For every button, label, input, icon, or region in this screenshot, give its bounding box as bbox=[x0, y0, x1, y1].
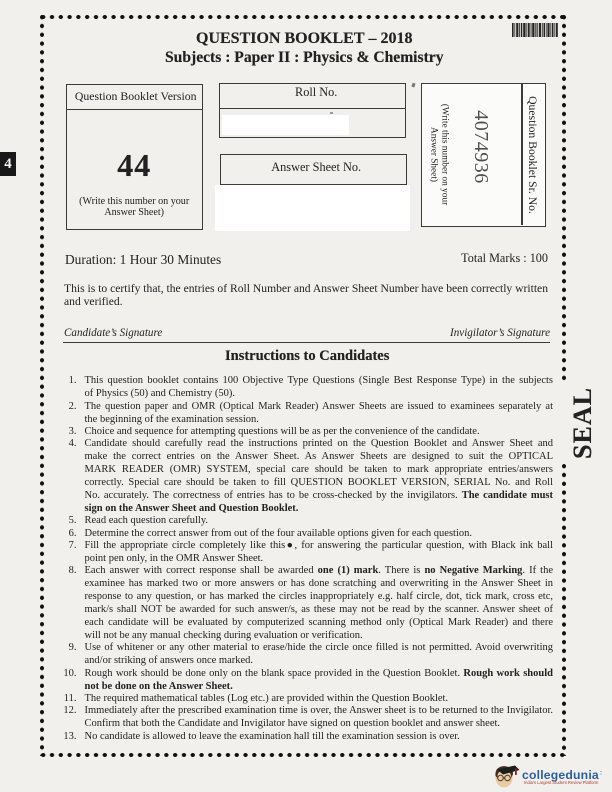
svg-text::: : bbox=[600, 771, 602, 777]
svg-text:India's Largest Student Review: India's Largest Student Review Platform bbox=[524, 780, 599, 785]
